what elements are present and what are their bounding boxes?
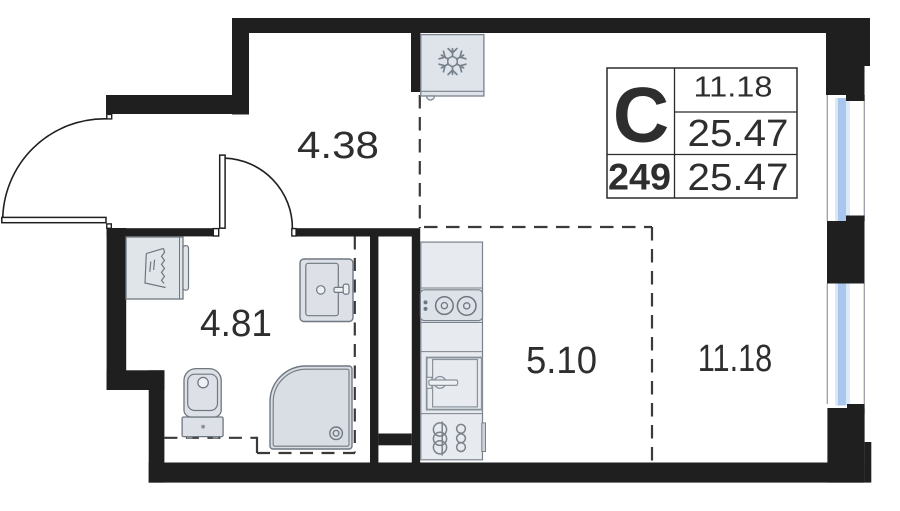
svg-text:25.47: 25.47 bbox=[688, 113, 789, 155]
svg-text:25.47: 25.47 bbox=[688, 157, 789, 199]
svg-text:11.18: 11.18 bbox=[698, 338, 773, 380]
svg-text:4.81: 4.81 bbox=[200, 303, 272, 345]
svg-text:5.10: 5.10 bbox=[526, 340, 597, 382]
svg-text:249: 249 bbox=[608, 157, 671, 198]
svg-text:4.38: 4.38 bbox=[297, 125, 379, 167]
svg-text:С: С bbox=[613, 71, 669, 159]
svg-text:11.18: 11.18 bbox=[694, 72, 773, 104]
